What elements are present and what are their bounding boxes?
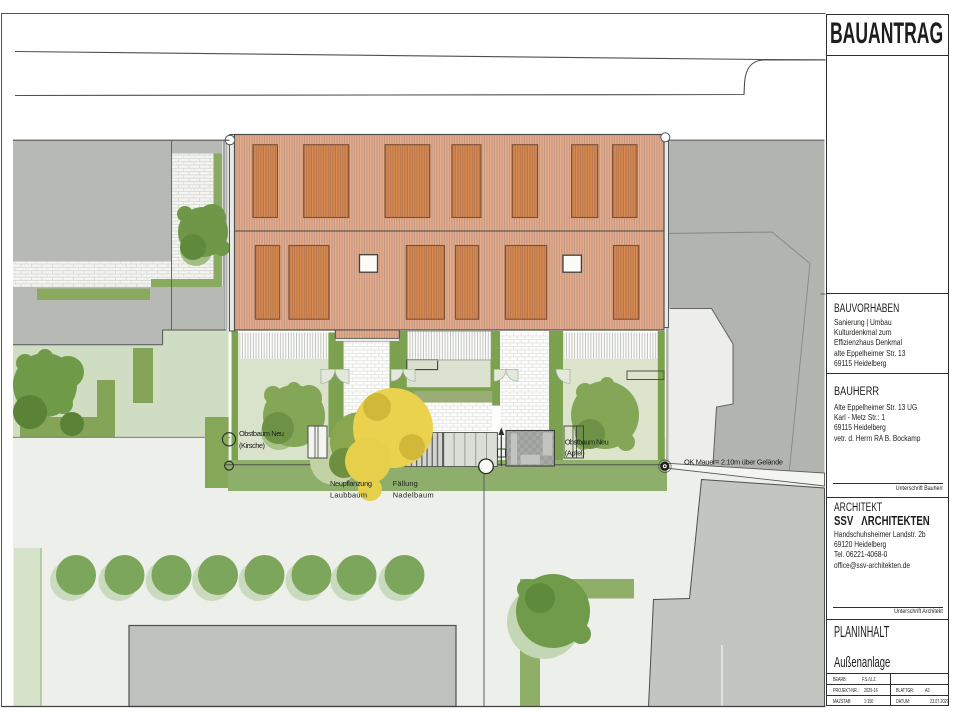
svg-text:(Kirsche): (Kirsche) <box>239 441 265 450</box>
svg-text:Neupflanzung: Neupflanzung <box>330 479 372 488</box>
svg-text:Laubbaum: Laubbaum <box>330 491 367 500</box>
svg-text:Nadelbaum: Nadelbaum <box>393 491 434 500</box>
svg-text:Obstbaum Neu: Obstbaum Neu <box>239 429 284 438</box>
svg-text:Fällung: Fällung <box>393 479 418 488</box>
svg-text:(Apfel): (Apfel) <box>565 449 585 458</box>
svg-text:OK Mauer= 2.10m über Gelände: OK Mauer= 2.10m über Gelände <box>684 458 783 467</box>
svg-text:Obstbaum Neu: Obstbaum Neu <box>565 438 609 447</box>
